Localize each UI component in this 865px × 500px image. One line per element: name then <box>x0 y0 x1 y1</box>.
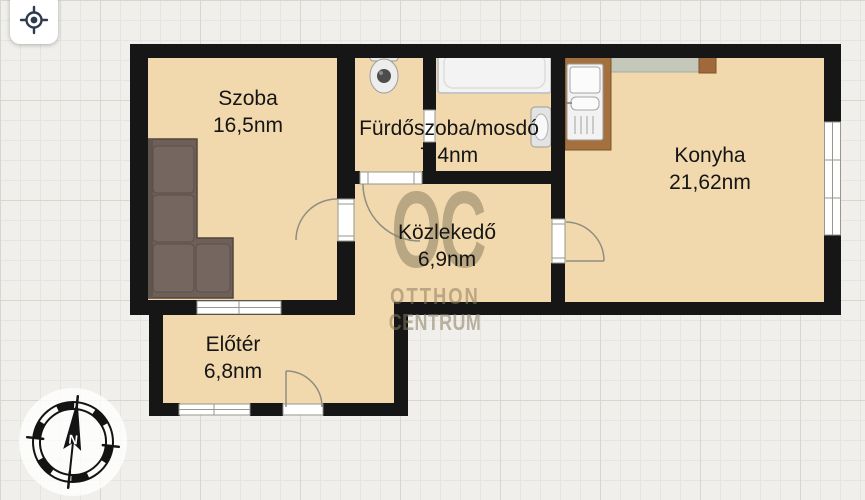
floor-areas <box>136 48 836 412</box>
doorjamb-konyha <box>552 219 565 263</box>
window-konyha <box>825 122 841 235</box>
floorplan-canvas: OC OTTHON CENTRUM Szoba 16,5nm Fürdőszob… <box>0 0 865 500</box>
doorjamb-szoba <box>338 199 354 241</box>
compass-rose: N <box>15 384 131 500</box>
crosshair-locate-icon <box>19 5 49 35</box>
window-eloter <box>179 404 250 415</box>
doorway-furdoszoba-internal <box>424 110 435 142</box>
locate-button[interactable] <box>10 0 58 44</box>
doorjamb-entry <box>283 404 323 415</box>
compass-north-label: N <box>68 432 79 448</box>
doorframe-furdoszoba <box>360 172 422 184</box>
window-szoba <box>197 301 281 314</box>
sink <box>531 107 551 147</box>
